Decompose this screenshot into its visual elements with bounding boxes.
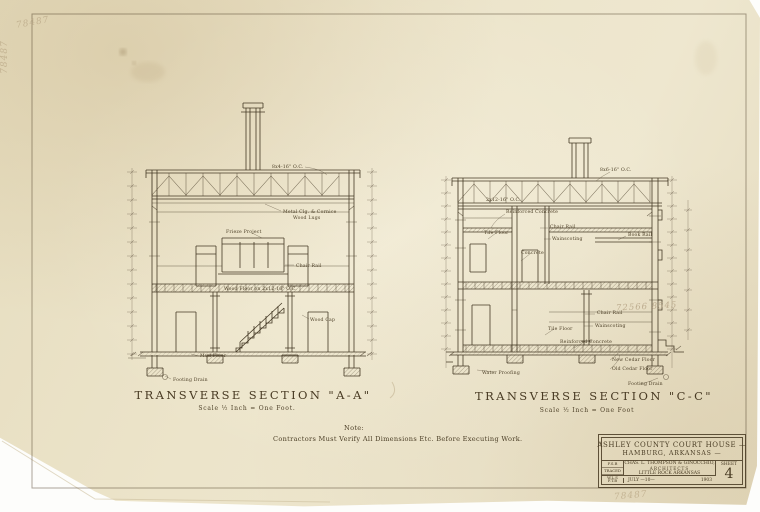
label-wood-cap: Wood Cap xyxy=(310,317,335,323)
note-label: Note: xyxy=(344,424,364,432)
stairs xyxy=(236,303,284,352)
label-tile-floor-upper: Tile Floor xyxy=(484,230,509,236)
label-joists2-cc: 2x12-16" O.C. xyxy=(486,197,521,203)
scanned-drawing-page: 8x4-16" O.C. Metal Clg. & Cornice Wood L… xyxy=(0,0,760,512)
label-chair-rail-upper: Chair Rail xyxy=(550,224,576,230)
credits-cell: F.S.B Traced W.L.S xyxy=(602,461,624,475)
project-location: Hamburg, Arkansas — xyxy=(623,450,722,457)
label-metal-ceiling: Metal Clg. & Cornice xyxy=(283,209,337,215)
architect-cell: Chas. L. Thompson & Ginocchio, Architect… xyxy=(624,461,716,475)
label-old-cedar-floor: Old Cedar Floor xyxy=(612,366,653,372)
label-wood-floor: Wood Floor on 2x12-16" O.C. xyxy=(224,286,297,292)
label-book-rail: Book Rail xyxy=(628,232,653,238)
section-cc-title: Transverse Section "C-C" xyxy=(475,389,713,403)
interior-lines xyxy=(128,203,372,358)
general-note: Note: Contractors Must Verify All Dimens… xyxy=(273,424,522,443)
section-aa-title: Transverse Section "A-A" xyxy=(135,388,372,402)
title-block-inner: Ashley County Court House — Hamburg, Ark… xyxy=(601,437,743,485)
title-block-project-row: Ashley County Court House — Hamburg, Ark… xyxy=(602,438,742,461)
pencil-number-left-edge: 78487 xyxy=(0,40,10,74)
transverse-section-cc: 8x6-16" O.C. 2x12-16" O.C. Reinforced Co… xyxy=(441,138,713,414)
label-wainscot-upper: Wainscoting xyxy=(552,236,583,242)
label-tile-floor-lower: Tile Floor xyxy=(548,326,573,332)
roof-and-walls-cc xyxy=(446,138,684,374)
sheet-border xyxy=(32,14,746,488)
transverse-section-aa: 8x4-16" O.C. Metal Clg. & Cornice Wood L… xyxy=(127,103,377,412)
sheet-number-cell: Sheet 4 xyxy=(716,461,742,475)
label-concrete: Concrete xyxy=(521,250,544,256)
drawn-by: F.T.B xyxy=(602,478,624,483)
drawing-date: July —10— xyxy=(624,478,701,483)
label-wainscot-lower: Wainscoting xyxy=(595,323,626,329)
label-wood-lugs: Wood Lugs xyxy=(293,215,321,221)
credit-1: F.S.B xyxy=(602,461,623,468)
paper-stains xyxy=(2,41,717,502)
label-footing-drain-cc: Footing Drain xyxy=(628,381,663,387)
roof-and-walls xyxy=(140,103,366,376)
title-block-middle-row: F.S.B Traced W.L.S Chas. L. Thompson & G… xyxy=(602,461,742,475)
label-mud-floor: Mud Floor xyxy=(200,353,227,359)
title-block-date-row: F.T.B July —10— 1903 xyxy=(602,475,742,484)
note-text: Contractors Must Verify All Dimensions E… xyxy=(273,435,522,443)
label-chair-rail-aa: Chair Rail xyxy=(296,263,322,269)
label-reinf-concrete-lower: Reinforced Concrete xyxy=(560,339,612,345)
label-frieze: Frieze Project xyxy=(226,229,262,235)
section-aa-scale: Scale ½ Inch = One Foot. xyxy=(198,405,295,412)
label-joists-cc: 8x6-16" O.C. xyxy=(600,167,632,173)
section-cc-scale: Scale ½ Inch = One Foot xyxy=(540,407,635,414)
title-block: Ashley County Court House — Hamburg, Ark… xyxy=(598,434,746,488)
label-reinf-concrete-upper: Reinforced Concrete xyxy=(506,209,558,215)
credit-2: Traced xyxy=(602,468,623,475)
project-name: Ashley County Court House — xyxy=(597,441,746,449)
label-new-cedar-floor: New Cedar Floor xyxy=(612,357,656,363)
label-water-proofing: Water Proofing xyxy=(482,370,520,376)
drawing-year: 1903 xyxy=(701,478,716,483)
label-footing-drain-aa: Footing Drain xyxy=(173,377,208,383)
label-joists-aa: 8x4-16" O.C. xyxy=(272,164,304,170)
